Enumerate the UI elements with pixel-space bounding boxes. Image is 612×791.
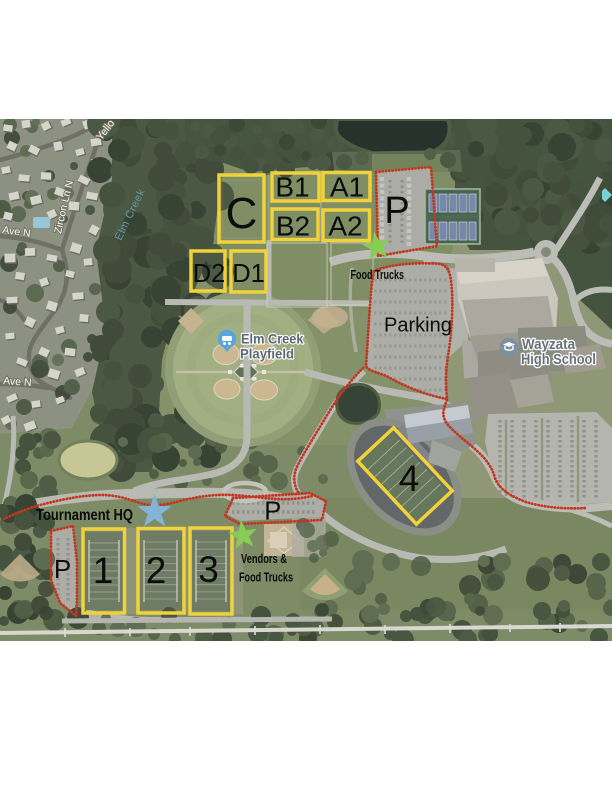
svg-text:Vendors &: Vendors & <box>241 551 287 566</box>
svg-text:P: P <box>384 190 409 232</box>
svg-text:Elm Creek: Elm Creek <box>241 331 304 347</box>
svg-text:Food Trucks: Food Trucks <box>239 570 293 585</box>
svg-text:Tournament HQ: Tournament HQ <box>36 507 133 524</box>
svg-text:4: 4 <box>399 458 420 499</box>
svg-text:D1: D1 <box>232 260 265 288</box>
svg-text:Food Trucks: Food Trucks <box>351 268 405 282</box>
svg-text:A1: A1 <box>330 172 364 203</box>
svg-text:C: C <box>226 189 258 238</box>
svg-text:P: P <box>54 554 71 584</box>
svg-text:P: P <box>264 498 281 526</box>
svg-text:2: 2 <box>146 550 167 591</box>
svg-text:3: 3 <box>198 549 219 590</box>
svg-text:B2: B2 <box>276 211 310 242</box>
svg-text:B1: B1 <box>275 172 309 203</box>
svg-text:Playfield: Playfield <box>240 346 294 362</box>
svg-text:A2: A2 <box>328 211 362 242</box>
svg-text:Parking: Parking <box>384 315 452 337</box>
svg-text:High School: High School <box>521 352 596 368</box>
svg-text:Wayzata: Wayzata <box>522 337 576 353</box>
svg-text:1: 1 <box>93 550 114 591</box>
svg-text:D2: D2 <box>193 260 226 288</box>
